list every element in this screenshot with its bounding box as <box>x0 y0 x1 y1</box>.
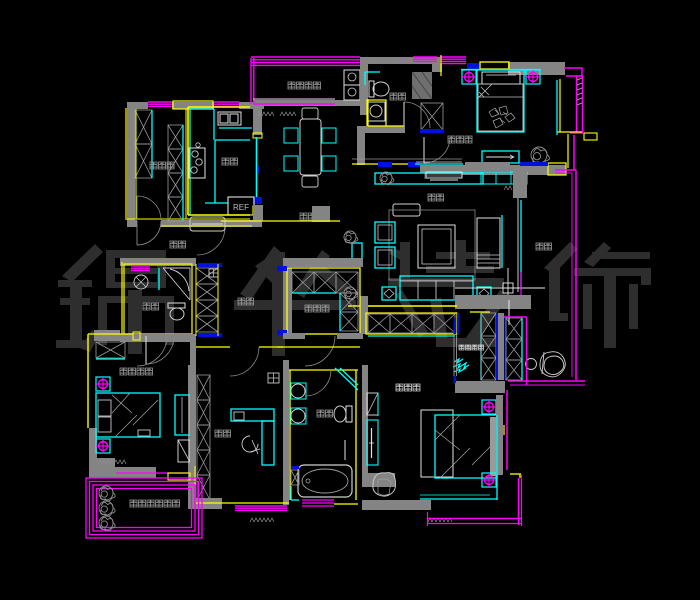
svg-text:REF: REF <box>233 203 249 212</box>
